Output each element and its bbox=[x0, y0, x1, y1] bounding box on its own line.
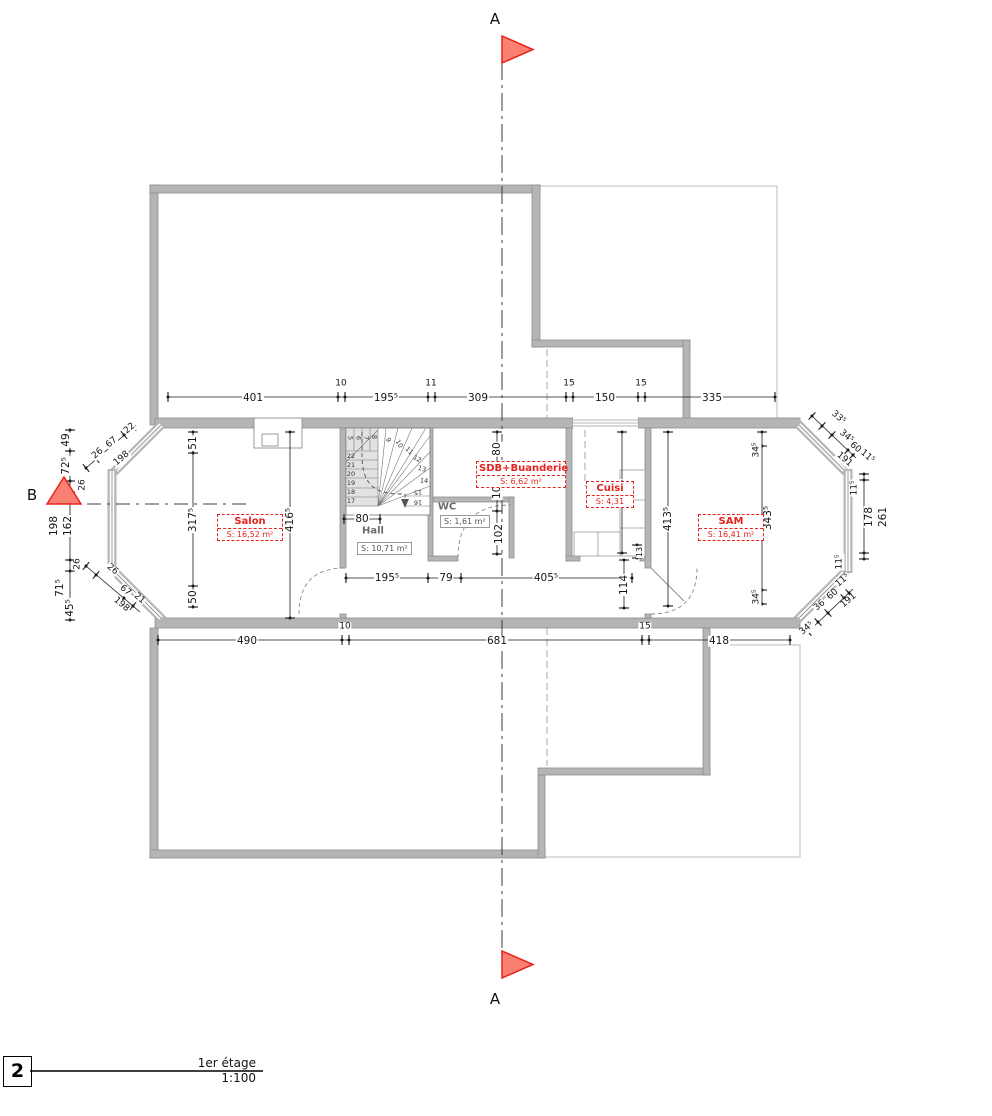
stair-step-number: 21 bbox=[347, 462, 355, 469]
stair-step-number: 20 bbox=[347, 471, 355, 478]
room-name-sdb: SDB+Buanderie bbox=[477, 462, 565, 476]
dim-416: 416⁵ bbox=[285, 507, 296, 533]
terrace-walls-top bbox=[150, 185, 690, 425]
room-label-sdb: SDB+Buanderie S: 6,62 m² bbox=[476, 461, 566, 488]
dim-11-right-top: 11⁵ bbox=[851, 479, 860, 496]
room-name-sam: SAM bbox=[699, 515, 763, 529]
dim-490: 490 bbox=[236, 636, 258, 647]
dim-102: 102 bbox=[494, 523, 505, 545]
door-arc-salon bbox=[299, 568, 345, 614]
stair-step-number: 18 bbox=[347, 489, 355, 496]
section-label-a-top: A bbox=[490, 10, 500, 28]
room-name-wc: WC bbox=[438, 502, 456, 513]
dim-681: 681 bbox=[486, 636, 508, 647]
room-name-salon: Salon bbox=[218, 515, 282, 529]
dim-405: 405⁵ bbox=[533, 573, 559, 584]
dim-150: 150 bbox=[594, 393, 616, 404]
stair-step-number: 5 bbox=[347, 436, 354, 440]
dim-309: 309 bbox=[467, 393, 489, 404]
dim-71: 71⁵ bbox=[55, 578, 66, 598]
dim-418: 418 bbox=[708, 636, 730, 647]
section-flag-b bbox=[47, 477, 81, 504]
dim-195-top: 195⁵ bbox=[373, 393, 399, 404]
floor-plan-page: A A B Salon S: 16,52 m² SDB+Buanderie S:… bbox=[0, 0, 992, 1116]
dim-50: 50 bbox=[188, 589, 199, 604]
dim-317: 317⁵ bbox=[188, 507, 199, 533]
stair-step-number: 19 bbox=[347, 480, 355, 487]
dim-34-bottom: 34⁵ bbox=[753, 588, 762, 605]
dim-80-wc: 80 bbox=[492, 441, 503, 456]
dim-15-top-a: 15 bbox=[562, 380, 575, 389]
room-label-salon: Salon S: 16,52 m² bbox=[217, 514, 283, 541]
sheet-title: 1er étage bbox=[198, 1056, 256, 1070]
room-name-cuisine: Cuisi bbox=[587, 482, 633, 496]
door-leaf-sam bbox=[651, 568, 684, 601]
dim-178: 178 bbox=[864, 506, 875, 528]
dim-15-bottom: 15 bbox=[638, 623, 651, 632]
room-label-cuisine: Cuisi S: 4,31 bbox=[586, 481, 634, 508]
chimney-niche bbox=[254, 418, 302, 448]
dim-10-top: 10 bbox=[334, 380, 347, 389]
room-area-sdb: S: 6,62 m² bbox=[477, 476, 565, 487]
section-flag-a-top bbox=[502, 36, 533, 63]
dim-11-right-bottom: 11⁵ bbox=[836, 553, 845, 570]
section-label-a-bottom: A bbox=[490, 990, 500, 1008]
dim-11-top: 11 bbox=[424, 380, 437, 389]
dim-198-left: 198 bbox=[49, 515, 60, 537]
room-name-hall: Hall bbox=[362, 526, 384, 537]
room-area-cuisine: S: 4,31 bbox=[587, 496, 633, 507]
dim-51: 51 bbox=[188, 435, 199, 450]
dim-10-bottom: 10 bbox=[338, 623, 351, 632]
stair-step-number: 15 bbox=[414, 489, 422, 496]
sheet-scale: 1:100 bbox=[221, 1071, 256, 1085]
stair-step-number: 16 bbox=[414, 499, 422, 506]
dim-13: 13 bbox=[636, 546, 644, 558]
dim-49: 49 bbox=[61, 432, 72, 447]
dim-80-stair: 80 bbox=[354, 514, 369, 525]
stair-step-number: 17 bbox=[347, 498, 355, 505]
stair-step-number: 13 bbox=[417, 465, 427, 473]
dim-162: 162 bbox=[63, 515, 74, 537]
room-area-salon: S: 16,52 m² bbox=[218, 529, 282, 540]
stair-step-number: 22 bbox=[347, 453, 355, 460]
stair-step-number: 14 bbox=[420, 477, 429, 484]
stair-step-number: 8 bbox=[371, 435, 378, 440]
dim-195-hall: 195⁵ bbox=[374, 573, 400, 584]
terrace-walls-bottom bbox=[150, 628, 710, 858]
window-north bbox=[573, 418, 638, 428]
dim-34-top: 34⁵ bbox=[753, 441, 762, 458]
dim-45: 45⁵ bbox=[65, 598, 76, 618]
dim-72: 72⁵ bbox=[61, 456, 72, 476]
section-label-b: B bbox=[27, 486, 37, 504]
dim-79: 79 bbox=[438, 573, 453, 584]
dim-15-top-b: 15 bbox=[634, 380, 647, 389]
dim-335: 335 bbox=[701, 393, 723, 404]
section-flag-a-bottom bbox=[502, 951, 533, 978]
dim-114: 114 bbox=[619, 574, 630, 596]
sheet-number: 2 bbox=[3, 1056, 32, 1087]
stair-step-number: 6 bbox=[355, 436, 362, 440]
dim-261: 261 bbox=[878, 506, 889, 528]
dim-413: 413⁵ bbox=[663, 506, 674, 532]
dim-343: 343⁵ bbox=[763, 505, 774, 531]
stair-step-number: 7 bbox=[363, 436, 370, 440]
room-area-sam: S: 16,41 m² bbox=[699, 529, 763, 540]
room-area-hall: S: 10,71 m² bbox=[357, 542, 412, 555]
dim-26-left-b: 26 bbox=[74, 557, 83, 570]
room-area-wc: S: 1,61 m² bbox=[440, 515, 490, 528]
dim-26-left-a: 26 bbox=[79, 478, 88, 491]
room-label-sam: SAM S: 16,41 m² bbox=[698, 514, 764, 541]
dim-401: 401 bbox=[242, 393, 264, 404]
